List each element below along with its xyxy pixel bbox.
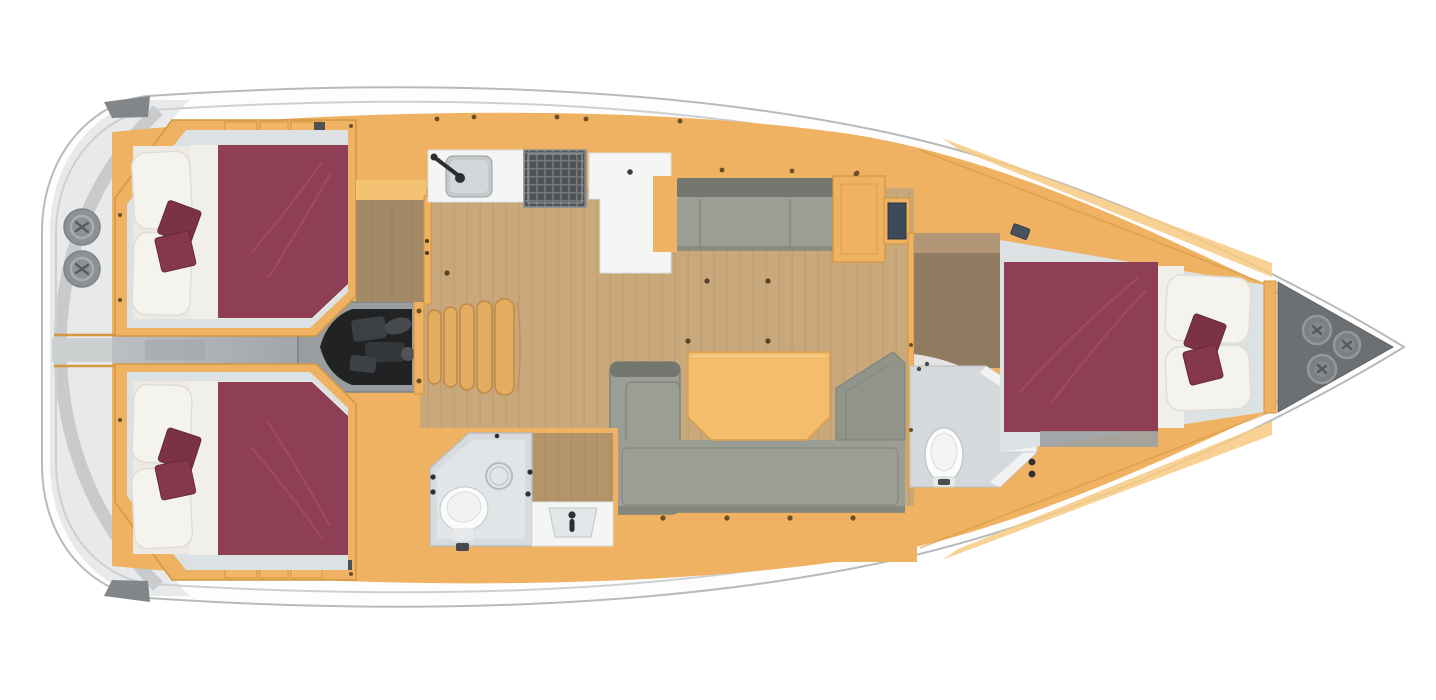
aft-cabin-starboard <box>115 364 356 580</box>
transom-walkway <box>52 338 114 362</box>
hinge-dot <box>417 379 422 384</box>
aft-port-cabin-entry <box>356 180 431 304</box>
bow-bulkhead <box>1264 281 1276 413</box>
cabin-door <box>356 200 426 302</box>
aft-cabin-port <box>115 120 356 336</box>
faucet-handle <box>570 519 575 532</box>
seat-shadow <box>612 506 905 513</box>
deck-hatch-icon <box>1308 355 1336 383</box>
faucet-icon <box>568 511 575 518</box>
yacht-floorplan-canvas <box>0 0 1436 700</box>
berth-foot-step <box>1040 431 1158 447</box>
cushion <box>155 459 197 501</box>
anchor-locker <box>1264 281 1393 413</box>
aft-head <box>418 428 618 578</box>
passage-floor <box>914 233 1000 368</box>
double-berth <box>1004 262 1158 432</box>
sofa-arm-top <box>610 362 680 377</box>
seat-shadow <box>677 246 855 251</box>
deck-hatch-icon <box>1334 332 1360 358</box>
corridor-floor <box>112 336 302 364</box>
threshold <box>356 180 426 200</box>
stern-corner-cap-starboard <box>104 580 150 602</box>
hinge-dot <box>925 362 929 366</box>
hinge-dot <box>425 251 429 255</box>
stern-winch-icon <box>64 209 100 245</box>
deck-hatch-icon <box>1303 316 1331 344</box>
sheet-band <box>190 381 218 555</box>
salon-table <box>688 352 830 440</box>
port-settee-backrest <box>677 178 855 197</box>
floor-shade <box>532 433 613 502</box>
latch-dot <box>627 169 633 175</box>
hinge-dot <box>425 239 429 243</box>
stern-corridor <box>52 335 302 366</box>
cushion <box>1182 344 1223 385</box>
fitting-dot <box>1029 459 1036 466</box>
door-frame <box>424 196 431 304</box>
double-berth <box>217 382 348 555</box>
settee-side-cabinet <box>653 176 677 252</box>
stern-corner-cap-port <box>104 96 150 118</box>
cushion <box>154 231 196 273</box>
hinge-dot <box>917 367 921 371</box>
hinge-dot <box>417 309 422 314</box>
yacht-floorplan <box>0 0 1436 700</box>
sofa-bottom-seat <box>612 440 905 512</box>
corridor-shadow <box>145 340 205 360</box>
navy-locker-door <box>888 203 906 239</box>
stern-winch-icon <box>64 251 100 287</box>
port-settee-seat <box>677 197 855 249</box>
double-berth <box>217 145 348 318</box>
fitting-dot <box>1029 471 1036 478</box>
passage-step <box>914 233 1000 253</box>
stove-grill <box>524 150 586 207</box>
